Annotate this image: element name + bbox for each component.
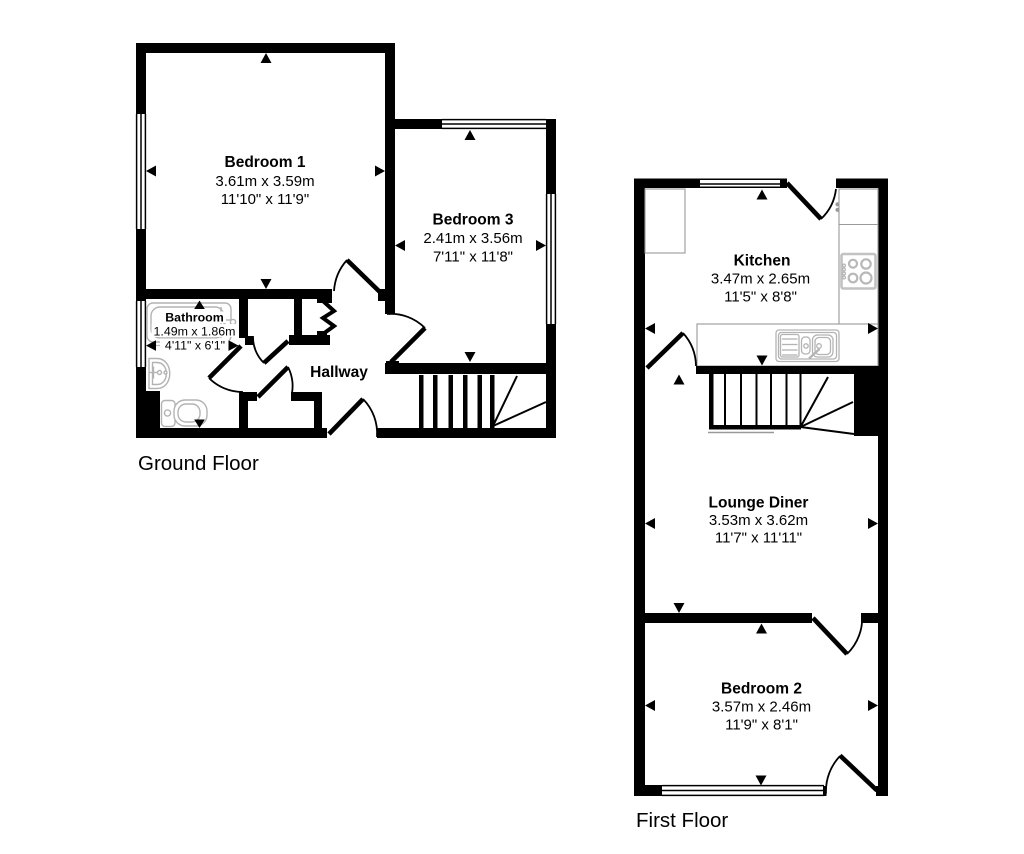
svg-text:Bedroom 3: Bedroom 3 <box>433 212 514 229</box>
svg-text:11'5" x 8'8": 11'5" x 8'8" <box>724 289 797 306</box>
svg-text:Bedroom 1: Bedroom 1 <box>225 154 306 171</box>
svg-text:11'9" x 8'1": 11'9" x 8'1" <box>725 717 798 734</box>
svg-text:4'11" x 6'1": 4'11" x 6'1" <box>165 339 225 353</box>
svg-text:11'10" x 11'9": 11'10" x 11'9" <box>221 191 309 208</box>
svg-text:3.47m x 2.65m: 3.47m x 2.65m <box>711 271 810 288</box>
svg-text:7'11" x 11'8": 7'11" x 11'8" <box>433 249 513 266</box>
svg-text:3.57m x 2.46m: 3.57m x 2.46m <box>712 699 811 716</box>
svg-text:Bathroom: Bathroom <box>165 311 224 325</box>
svg-text:Kitchen: Kitchen <box>734 253 791 270</box>
svg-text:Ground Floor: Ground Floor <box>138 452 259 475</box>
svg-text:Bedroom 2: Bedroom 2 <box>721 681 802 698</box>
svg-text:3.61m x 3.59m: 3.61m x 3.59m <box>215 173 314 190</box>
svg-text:3.53m x 3.62m: 3.53m x 3.62m <box>709 512 808 529</box>
svg-text:11'7" x 11'11": 11'7" x 11'11" <box>715 530 802 547</box>
svg-text:1.49m x 1.86m: 1.49m x 1.86m <box>154 325 236 339</box>
svg-text:Lounge Diner: Lounge Diner <box>709 495 809 512</box>
svg-text:First Floor: First Floor <box>636 809 728 832</box>
svg-text:Hallway: Hallway <box>310 364 368 381</box>
svg-text:2.41m x 3.56m: 2.41m x 3.56m <box>423 230 522 247</box>
